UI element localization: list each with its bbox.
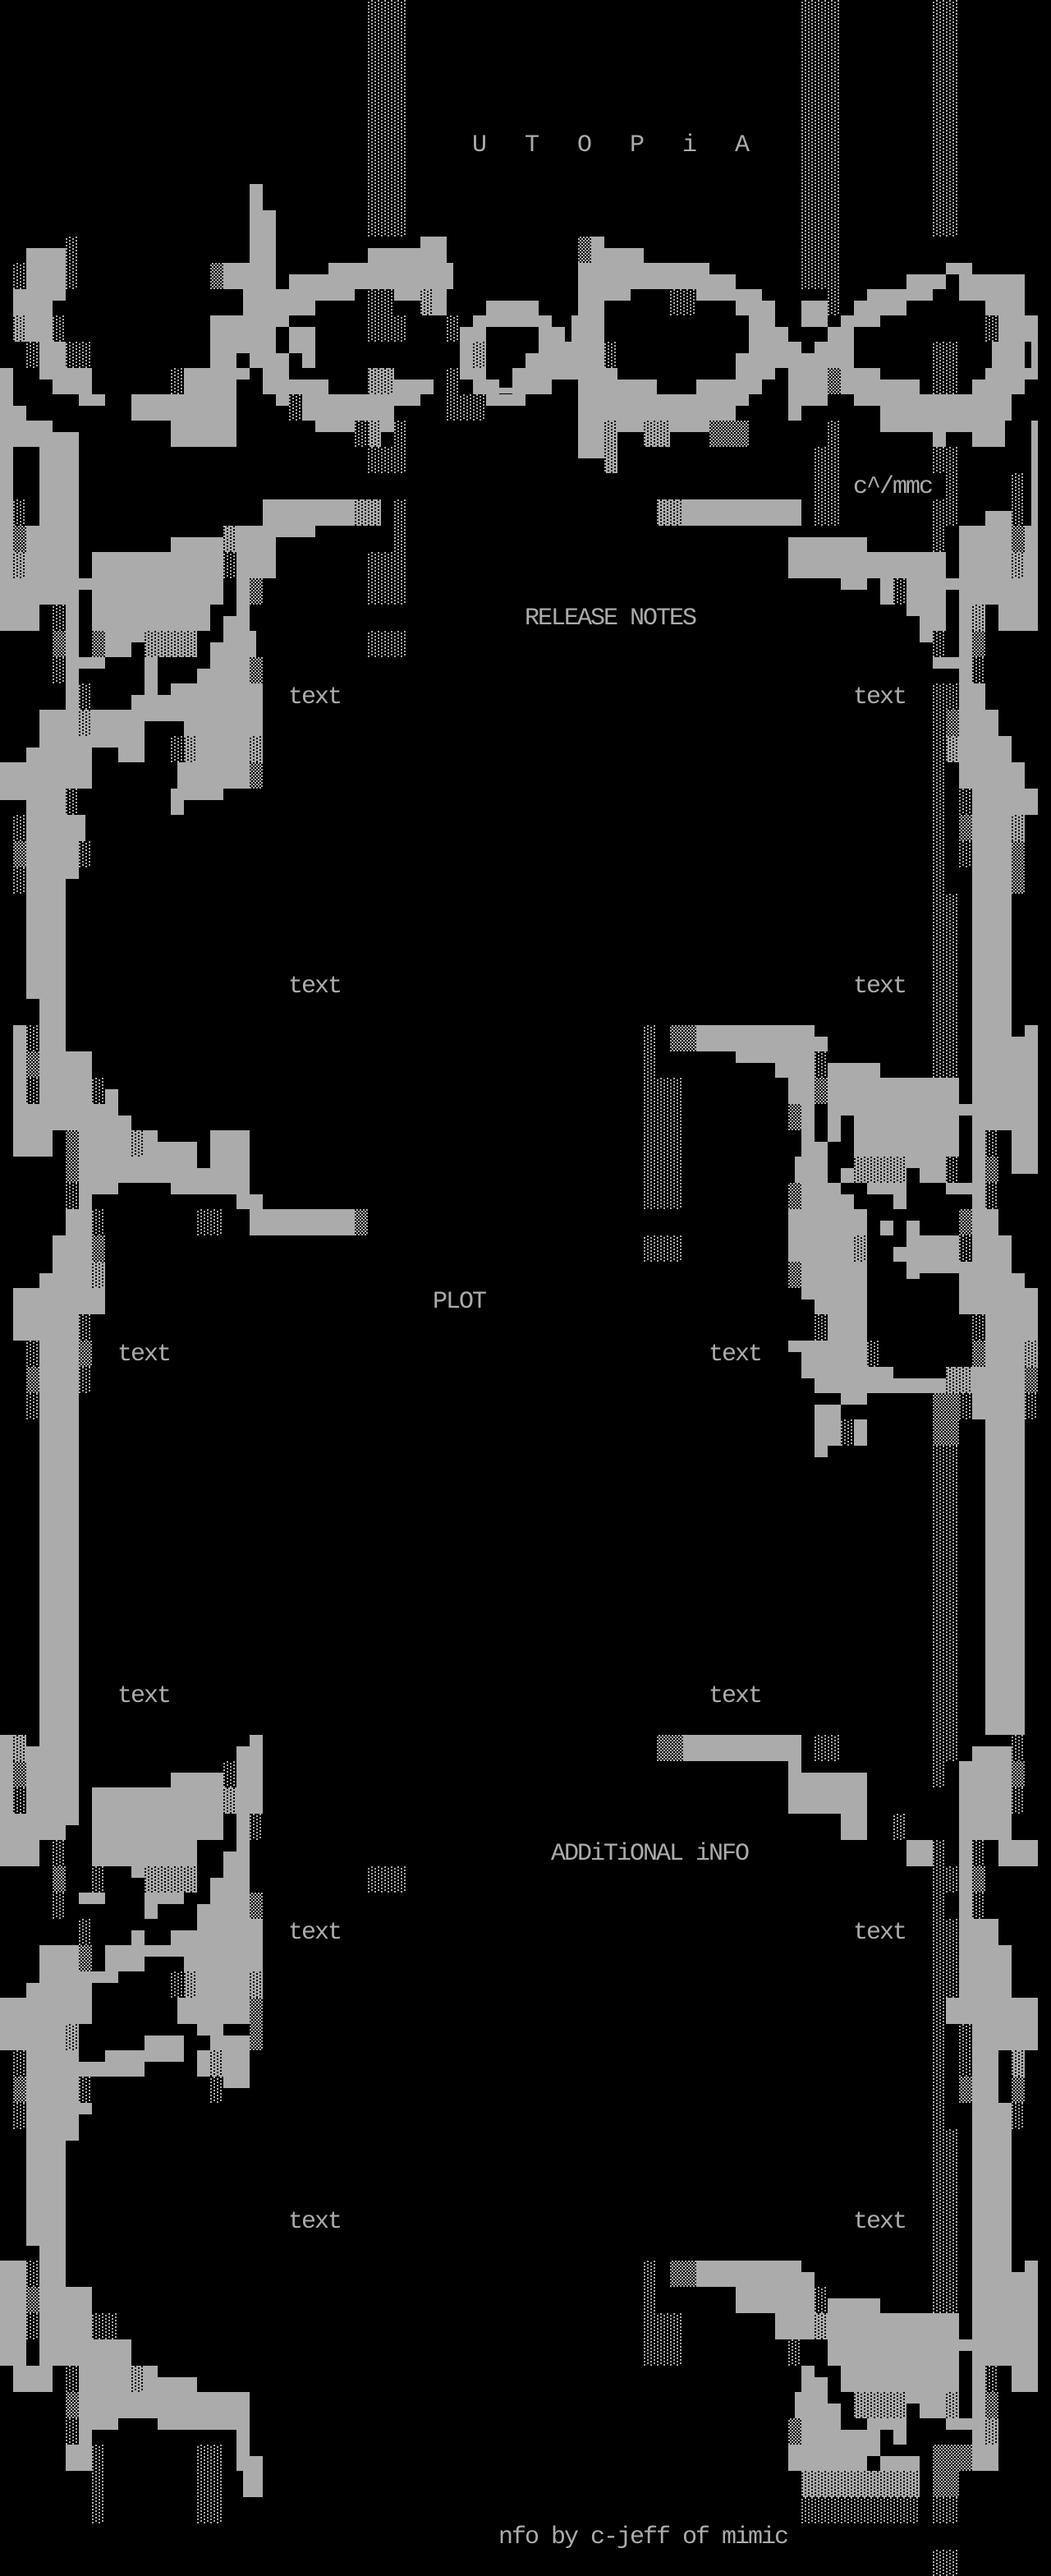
svg-text:t: t <box>157 1682 172 1710</box>
svg-text:c: c <box>774 2523 789 2551</box>
svg-text:P: P <box>630 131 645 159</box>
svg-text:y: y <box>564 2523 579 2551</box>
svg-text:t: t <box>328 2208 342 2236</box>
svg-text:t: t <box>748 1341 763 1368</box>
svg-text:A: A <box>735 131 750 159</box>
svg-text:O: O <box>735 1840 750 1868</box>
svg-text:t: t <box>328 683 342 711</box>
svg-text:t: t <box>157 1341 172 1368</box>
svg-text:L: L <box>669 1840 684 1868</box>
svg-text:T: T <box>472 1288 487 1316</box>
svg-text:t: t <box>893 2208 907 2236</box>
svg-text:t: t <box>893 973 907 1000</box>
svg-text:t: t <box>328 973 342 1000</box>
svg-text:c: c <box>919 473 934 501</box>
svg-text:T: T <box>525 131 539 159</box>
svg-text:t: t <box>748 1682 763 1710</box>
svg-text:i: i <box>682 131 697 159</box>
svg-text:f: f <box>695 2523 710 2551</box>
svg-text:O: O <box>577 131 592 159</box>
svg-text:E: E <box>604 605 618 632</box>
svg-text:o: o <box>525 2523 539 2551</box>
svg-text:t: t <box>893 683 907 711</box>
svg-text:S: S <box>682 605 697 632</box>
svg-text:t: t <box>328 1919 342 1947</box>
svg-text:U: U <box>472 131 487 159</box>
svg-text:t: t <box>893 1919 907 1947</box>
svg-text:f: f <box>656 2523 671 2551</box>
